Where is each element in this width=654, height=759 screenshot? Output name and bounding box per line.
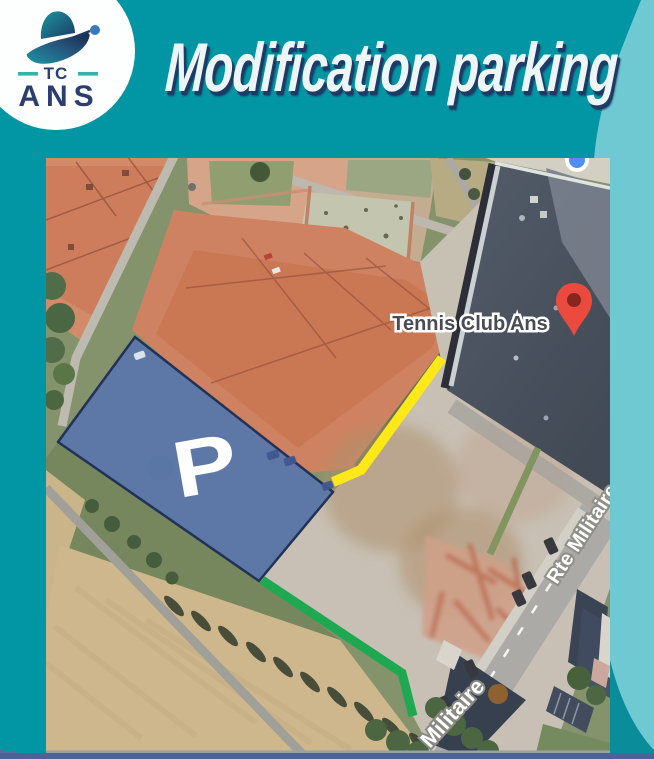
svg-text:ANS: ANS xyxy=(18,80,99,113)
